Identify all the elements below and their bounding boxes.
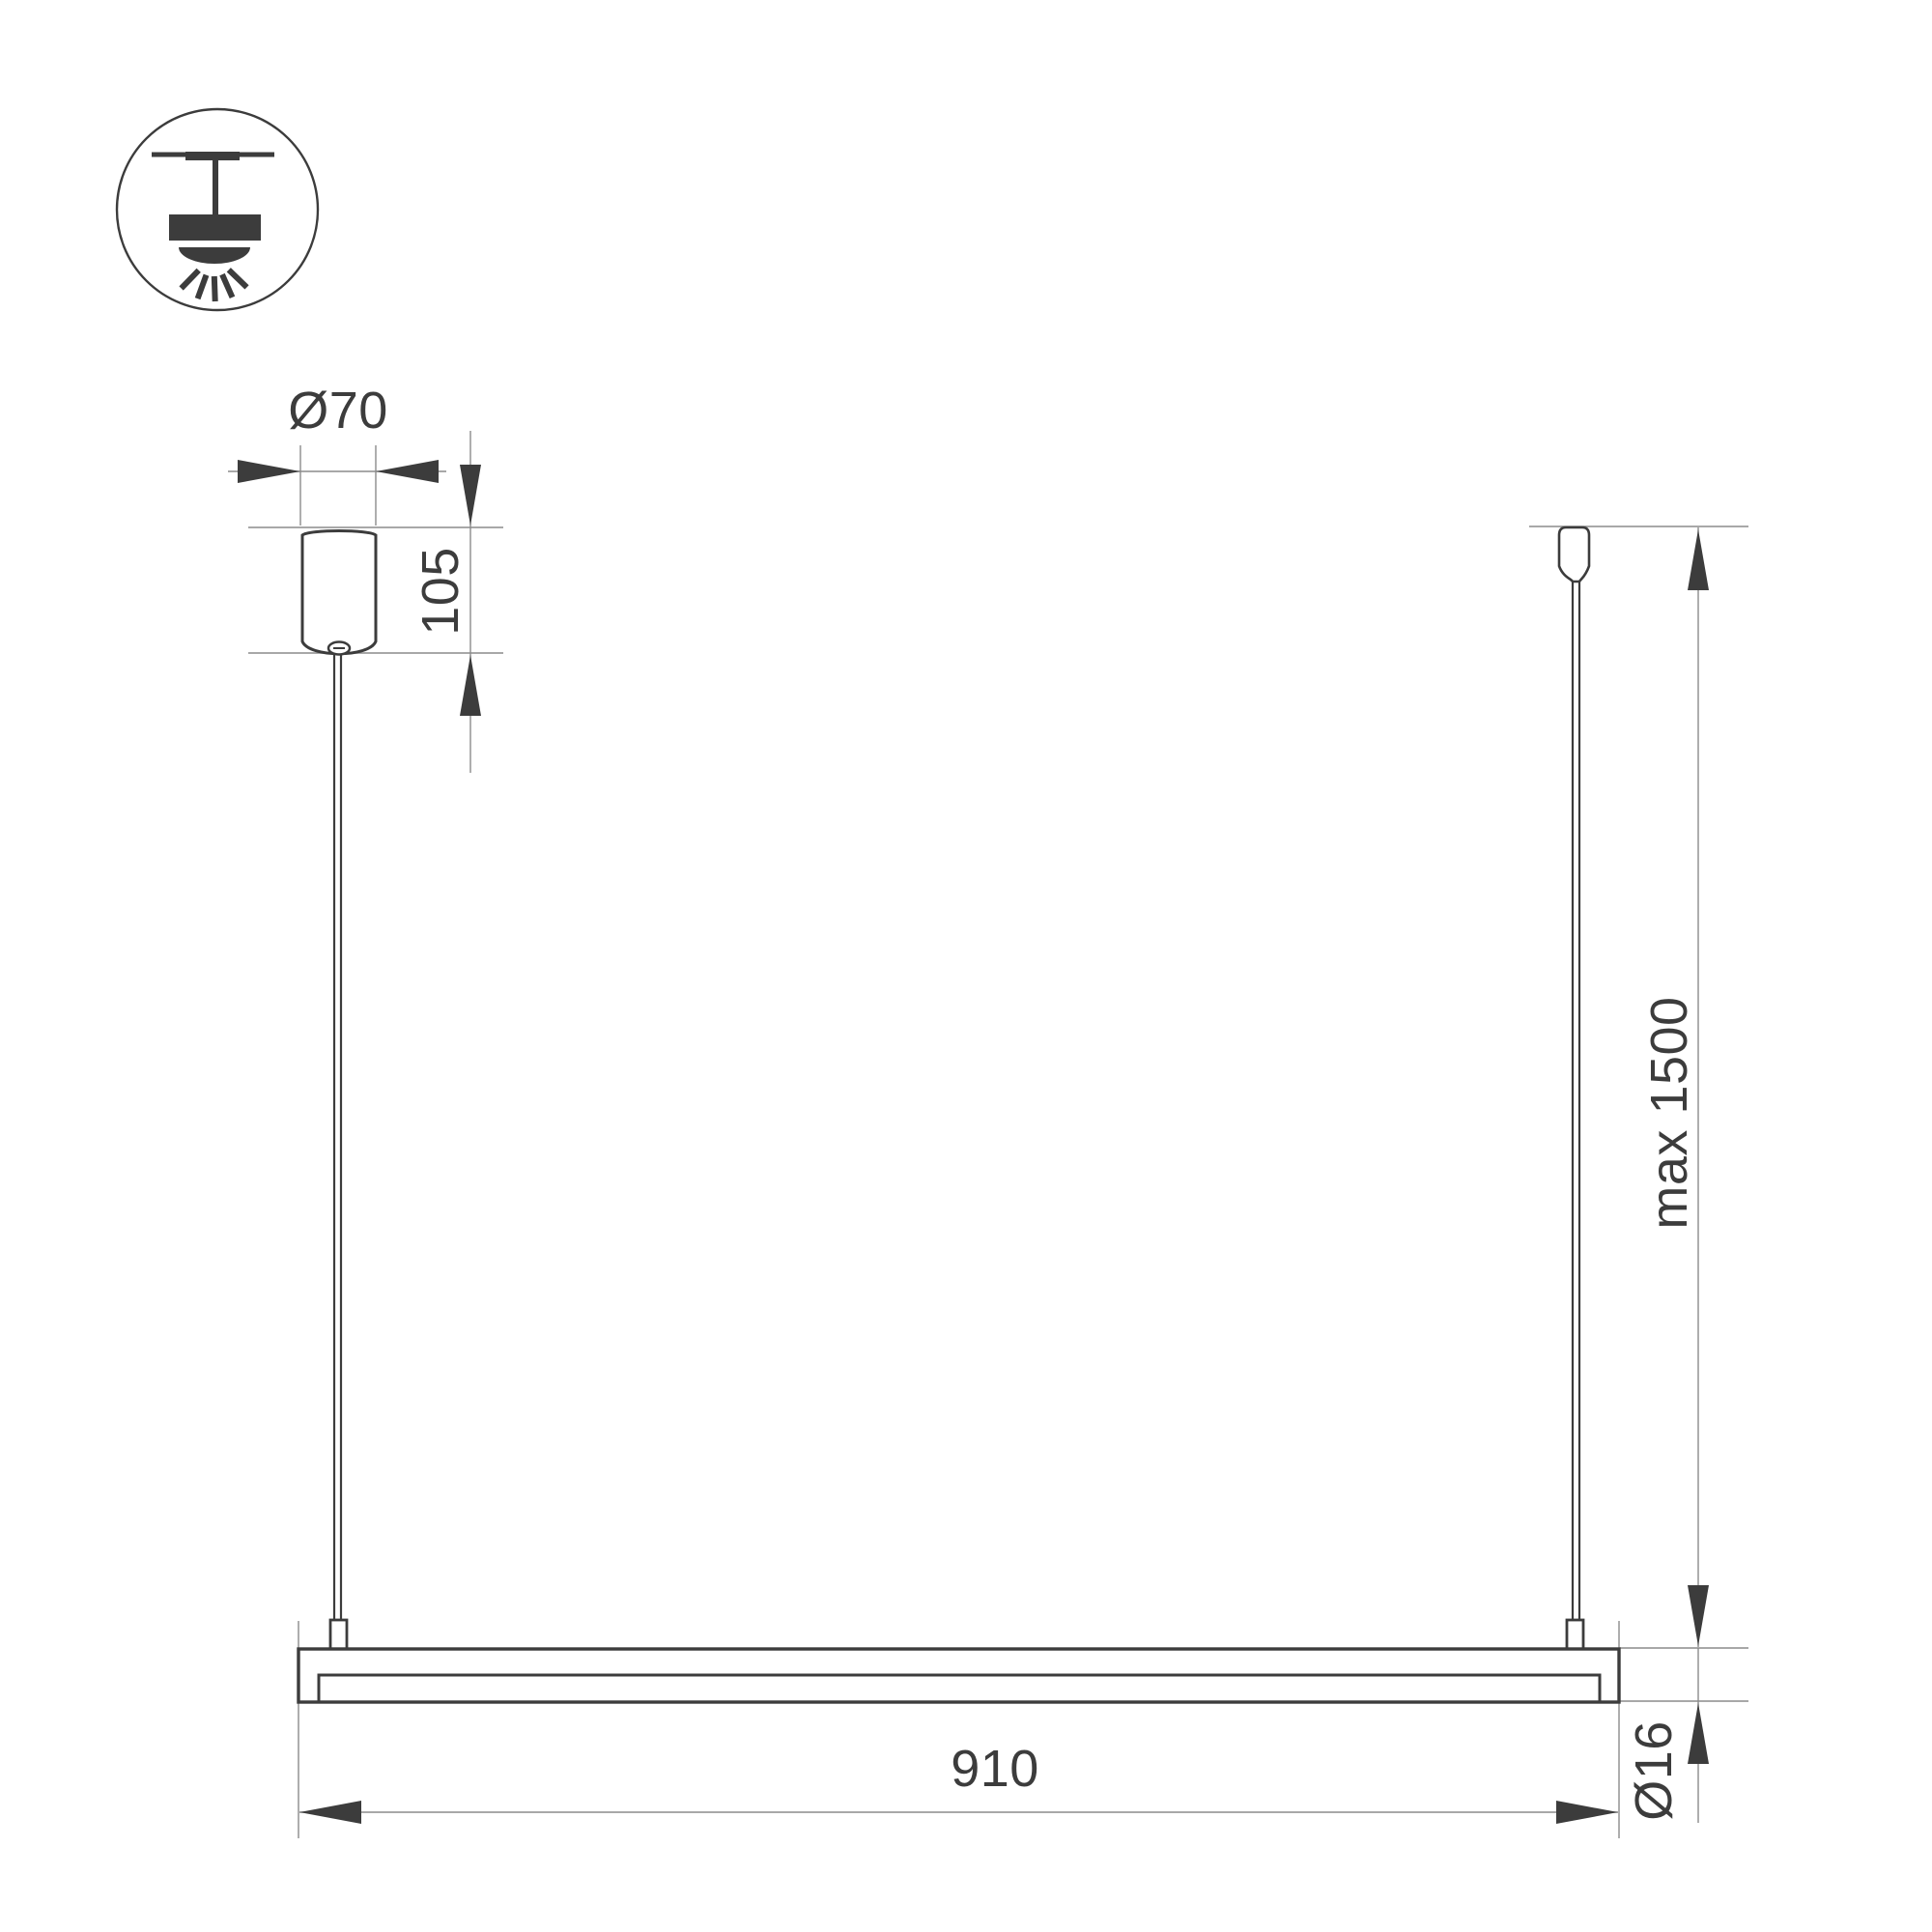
icon-lamp-body [169,214,261,241]
label-tube-diameter: Ø16 [1625,1720,1683,1821]
label-max-suspension: max 1500 [1640,996,1698,1229]
right-suspension [1529,526,1748,1642]
arrowhead [238,460,300,483]
wire-grip-outline [1559,527,1589,582]
label-fixture-length: 910 [951,1740,1039,1798]
arrowhead [1688,1585,1709,1646]
technical-drawing-canvas: Ø70 105 max 1500 Ø16 [0,0,1932,1932]
arrowhead [1688,529,1709,590]
label-canopy-diameter: Ø70 [288,382,388,440]
dimension-tube-diameter: Ø16 [1620,1648,1748,1823]
canopy-outline [302,531,376,654]
pendant-lamp-dimension-drawing: Ø70 105 max 1500 Ø16 [0,0,1932,1932]
lamp-bar [298,1620,1619,1702]
ceiling-canopy [302,531,376,1643]
arrowhead [1688,1703,1709,1764]
icon-mount-plate [185,152,240,160]
dimension-max-suspension: max 1500 [1620,527,1748,1648]
icon-stem [213,160,218,216]
arrowhead [1556,1801,1618,1824]
wire-connector-right [1567,1620,1583,1649]
label-canopy-height: 105 [412,547,469,636]
wire-connector-left [330,1620,347,1649]
arrowhead [376,460,439,483]
arrowhead [299,1801,361,1824]
icon-light-rays [182,270,247,301]
arrowhead [460,465,481,526]
icon-light-dome [179,247,250,264]
arrowhead [460,655,481,716]
dimension-canopy-diameter: Ø70 [228,382,446,526]
ceiling-pendant-light-icon [117,109,318,310]
